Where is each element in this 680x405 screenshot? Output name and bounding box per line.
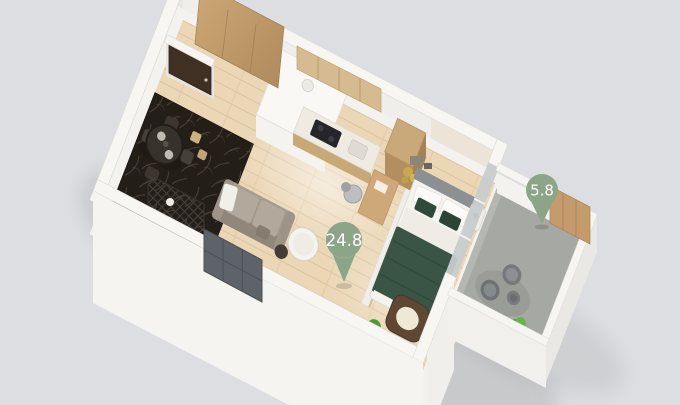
desk-chair-back: [341, 182, 351, 192]
wall-shelf-decor: [424, 163, 432, 169]
pin-shadow: [336, 283, 352, 289]
gold-flowers: [402, 177, 409, 184]
lattice-decor-ball: [166, 198, 174, 206]
wall-shelf-decor: [410, 156, 424, 165]
floor-plan-scene: 24.8 5.8: [0, 0, 680, 405]
balcony-area-label: 5.8: [530, 182, 554, 200]
pin-shadow: [535, 225, 549, 230]
floor-plan-render: 24.8 5.8: [0, 0, 680, 405]
room-area-label: 24.8: [326, 231, 363, 250]
door-handle: [204, 78, 207, 81]
